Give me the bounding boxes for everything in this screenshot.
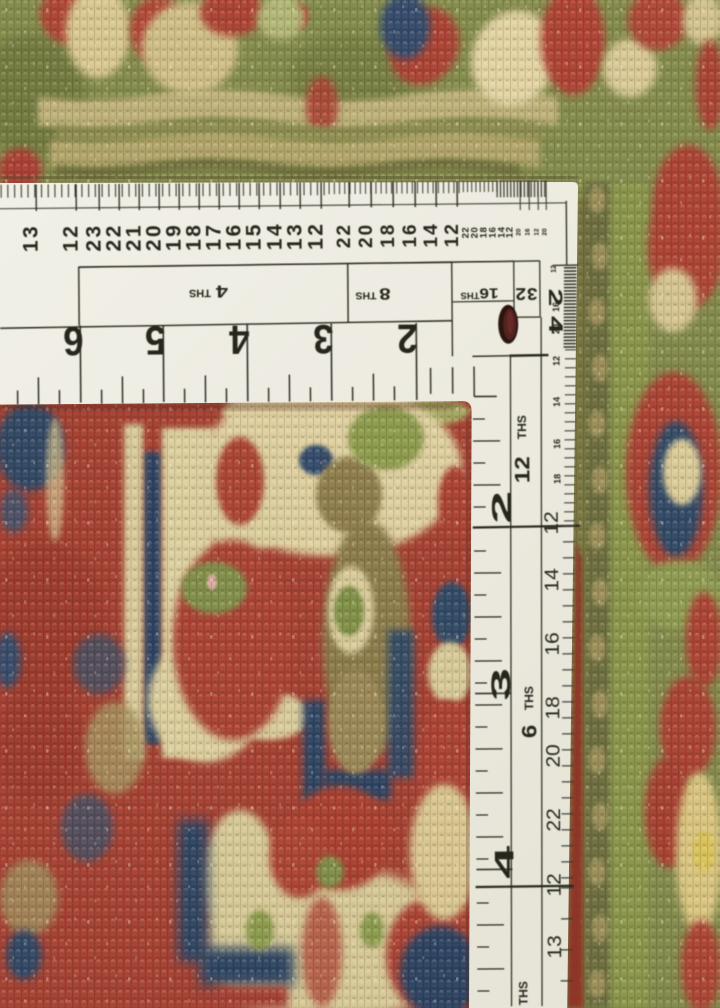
svg-text:12: 12: [533, 228, 540, 236]
svg-text:THS: THS: [189, 287, 211, 299]
svg-text:18: 18: [543, 696, 564, 720]
svg-text:12: 12: [544, 873, 565, 897]
svg-text:16: 16: [524, 228, 531, 236]
svg-text:THS: THS: [522, 686, 536, 710]
svg-text:18: 18: [552, 474, 562, 484]
svg-text:12: 12: [542, 511, 563, 535]
svg-text:THS: THS: [515, 415, 529, 439]
svg-text:5: 5: [145, 317, 166, 362]
svg-text:24: 24: [545, 288, 567, 343]
svg-text:THS: THS: [516, 981, 530, 1005]
svg-text:6: 6: [518, 725, 541, 739]
svg-text:2: 2: [486, 491, 517, 524]
svg-text:THS: THS: [460, 290, 479, 301]
svg-text:15: 15: [242, 222, 265, 251]
svg-text:12: 12: [551, 356, 561, 366]
svg-text:THS: THS: [355, 289, 376, 301]
svg-text:12: 12: [504, 226, 515, 238]
svg-text:2: 2: [397, 315, 418, 360]
svg-text:20: 20: [541, 228, 548, 236]
svg-text:14: 14: [542, 568, 563, 592]
svg-text:20: 20: [515, 228, 522, 236]
svg-text:16: 16: [400, 222, 421, 247]
svg-text:16: 16: [479, 285, 498, 302]
svg-text:4: 4: [489, 845, 520, 879]
svg-text:12: 12: [59, 223, 82, 252]
svg-text:4: 4: [229, 316, 250, 361]
svg-text:22: 22: [544, 808, 565, 832]
svg-text:4: 4: [216, 281, 228, 301]
svg-text:6: 6: [63, 318, 84, 363]
svg-text:8: 8: [379, 285, 390, 304]
svg-text:16: 16: [551, 302, 561, 312]
svg-text:20: 20: [543, 744, 564, 768]
svg-text:14: 14: [552, 397, 562, 407]
svg-text:18: 18: [378, 223, 399, 248]
svg-text:12: 12: [511, 456, 534, 483]
svg-text:20: 20: [551, 324, 561, 334]
svg-text:3: 3: [485, 668, 516, 701]
svg-text:12: 12: [304, 222, 327, 251]
svg-text:20: 20: [356, 223, 377, 248]
svg-text:12: 12: [551, 265, 558, 273]
svg-text:16: 16: [542, 632, 563, 656]
svg-text:16: 16: [552, 439, 562, 449]
svg-text:32: 32: [514, 284, 537, 305]
svg-text:3: 3: [313, 316, 334, 361]
svg-text:14: 14: [421, 222, 442, 247]
svg-text:14: 14: [0, 224, 2, 253]
svg-text:13: 13: [19, 224, 42, 253]
svg-text:13: 13: [283, 222, 306, 251]
svg-text:22: 22: [334, 223, 355, 248]
svg-text:13: 13: [545, 935, 566, 959]
